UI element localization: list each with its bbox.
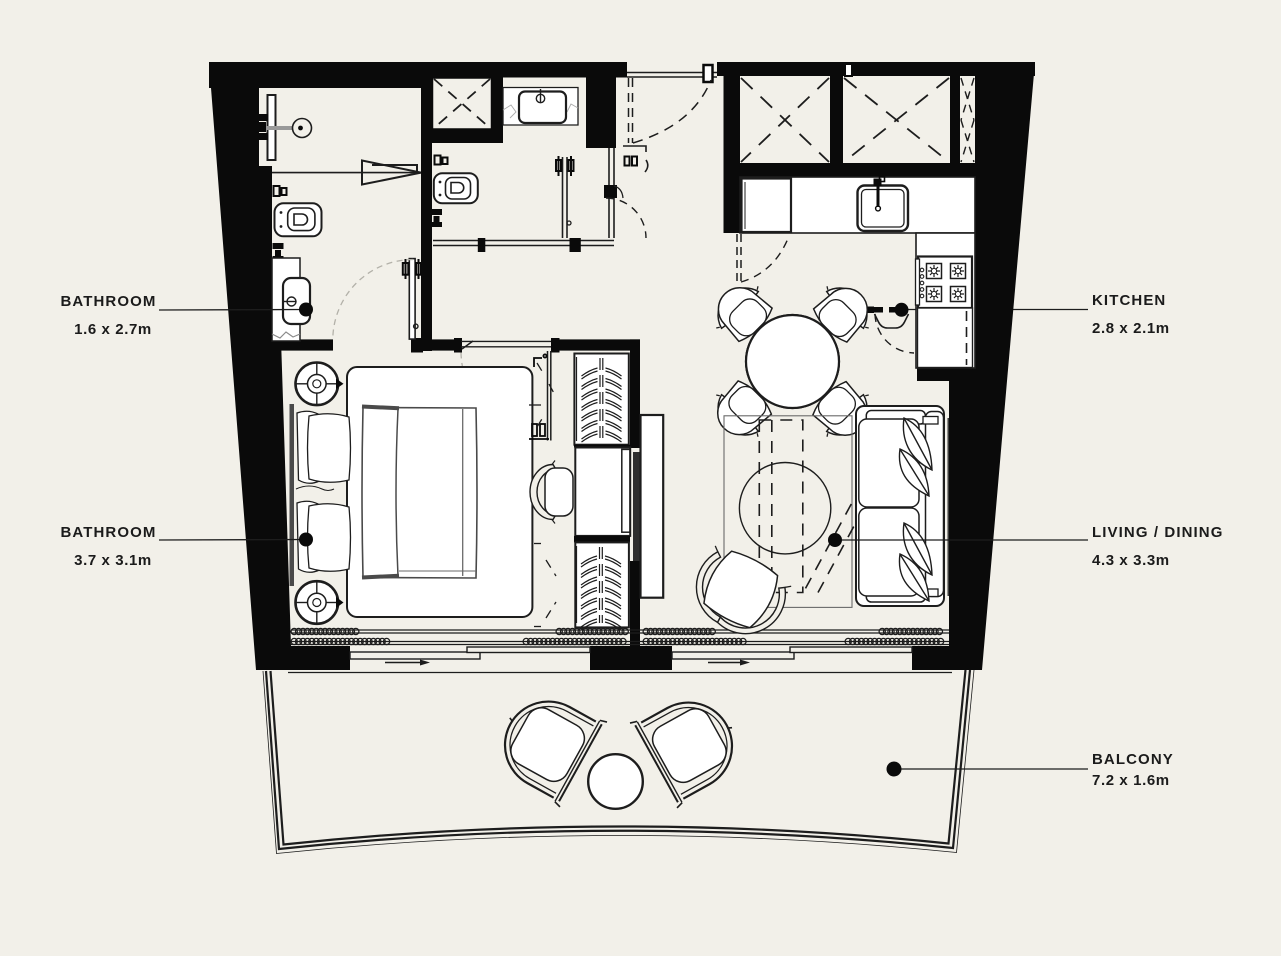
- svg-text:BALCONY: BALCONY: [1092, 751, 1174, 768]
- svg-text:LIVING / DINING: LIVING / DINING: [1092, 524, 1224, 541]
- svg-text:4.3 x 3.3m: 4.3 x 3.3m: [1092, 552, 1170, 569]
- svg-text:3.7 x 3.1m: 3.7 x 3.1m: [74, 552, 152, 569]
- svg-text:BATHROOM: BATHROOM: [60, 293, 156, 310]
- svg-text:7.2 x 1.6m: 7.2 x 1.6m: [1092, 772, 1170, 789]
- svg-text:BATHROOM: BATHROOM: [60, 524, 156, 541]
- svg-text:2.8 x 2.1m: 2.8 x 2.1m: [1092, 320, 1170, 337]
- svg-text:1.6 x 2.7m: 1.6 x 2.7m: [74, 321, 152, 338]
- svg-text:KITCHEN: KITCHEN: [1092, 292, 1166, 309]
